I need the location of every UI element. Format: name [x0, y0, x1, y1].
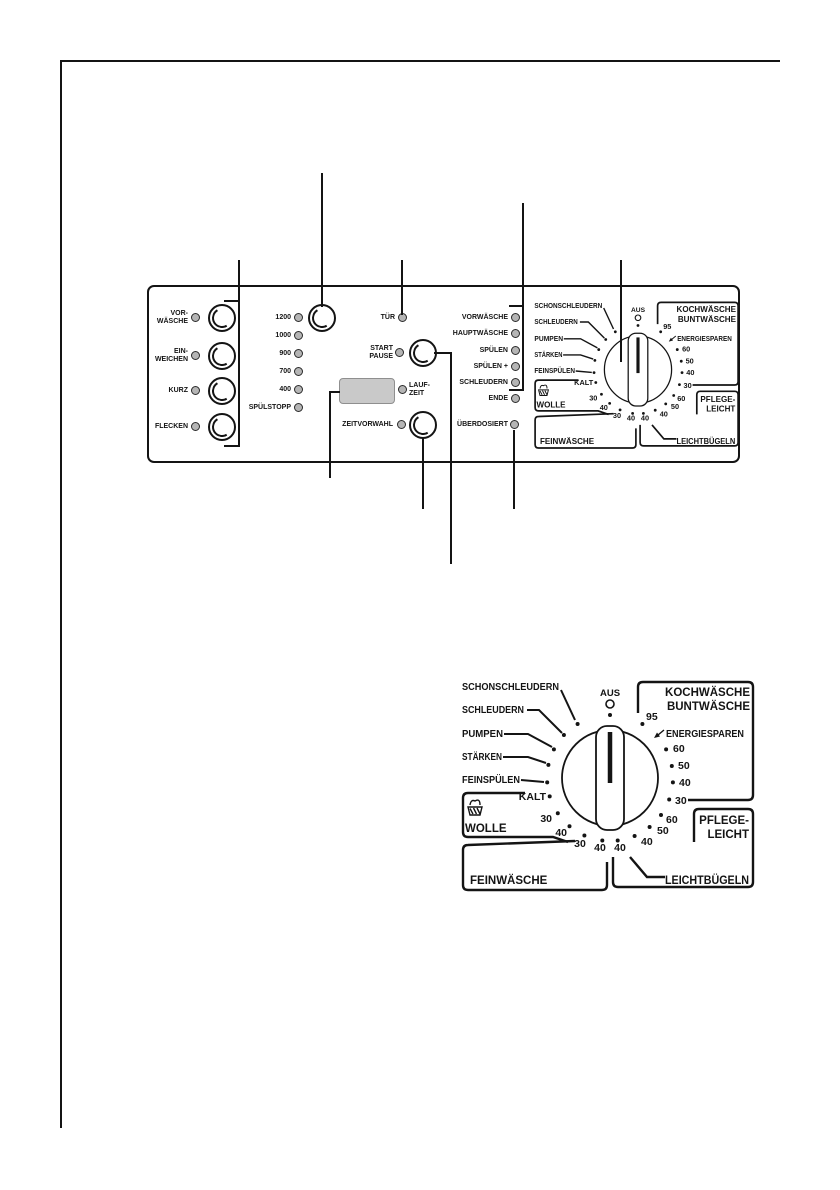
handwash-icon [468, 800, 482, 815]
leader-option-buttons [238, 260, 240, 286]
start-pause-button [409, 339, 437, 367]
spin-900-led [294, 349, 303, 358]
start-pause-label: START PAUSE [343, 345, 393, 361]
laufzeit-led [398, 385, 407, 394]
leader-program-dial [620, 260, 622, 362]
program-dial-diagram-large: AUS SCHONSCHLEUDERN SCHLEUDERN PUMPEN ST… [440, 660, 780, 910]
energiesparen-arrow [658, 730, 664, 735]
temp-50: 50 [678, 760, 690, 772]
leichtbuegeln-connector [630, 857, 665, 877]
program-pumpen: PUMPEN [462, 729, 503, 740]
spin-700-led [294, 367, 303, 376]
button-arc [310, 306, 334, 330]
spin-1200-label: 1200 [241, 314, 291, 322]
mark-40a: 40 [641, 836, 653, 848]
aus-marker [606, 700, 614, 708]
spin-700-label: 700 [241, 368, 291, 376]
page-frame-left [60, 60, 62, 1128]
flecken-button-label: FLECKEN [138, 423, 188, 431]
leader-tuer-led [401, 260, 403, 315]
ueberdosiert-led [510, 420, 519, 429]
phase-hauptwaesche-label: HAUPTWÄSCHE [436, 330, 508, 338]
aus-label: AUS [600, 688, 620, 699]
temp-60: 60 [673, 743, 685, 755]
spin-1000-label: 1000 [241, 332, 291, 340]
manual-page: VOR- WÄSCHE EIN- WEICHEN KURZ FLECKEN 12… [0, 0, 840, 1190]
region-buntwaesche-label: BUNTWÄSCHE [667, 700, 750, 713]
temp-30: 30 [675, 795, 687, 807]
phase-schleudern-label: SCHLEUDERN [436, 379, 508, 387]
leader-phase-leds [522, 203, 524, 391]
kurz-led [191, 386, 200, 395]
bracket-phase-leds-tick-bottom [509, 389, 524, 391]
page-frame-top [61, 60, 780, 62]
mark-30a: 30 [574, 838, 586, 850]
mark-30b: 30 [540, 813, 552, 825]
program-staerken: STÄRKEN [462, 750, 502, 763]
program-dial: AUS SCHONSCHLEUDERN SCHLEUDERN PUMPEN ST… [462, 682, 753, 890]
region-leicht-label: LEICHT [707, 829, 749, 841]
button-arc [411, 413, 435, 437]
region-wolle-label: WOLLE [465, 823, 507, 835]
leader-display-h [330, 391, 340, 393]
leader-display-v [329, 391, 331, 478]
bracket-option-buttons [238, 285, 240, 447]
spuelstopp-led [294, 403, 303, 412]
flecken-led [191, 422, 200, 431]
button-arc [210, 306, 234, 330]
program-dial-panel-instance [534, 302, 738, 448]
spin-900-label: 900 [241, 350, 291, 358]
kurz-button [208, 377, 236, 405]
einweichen-button [208, 342, 236, 370]
vorwaesche-led [191, 313, 200, 322]
phase-ende-label: ENDE [436, 395, 508, 403]
bracket-option-buttons-tick-top [224, 300, 240, 302]
ueberdosiert-label: ÜBERDOSIERT [436, 421, 508, 429]
energiesparen-label: ENERGIESPAREN [666, 729, 744, 740]
start-pause-led [395, 348, 404, 357]
zeitvorwahl-button [409, 411, 437, 439]
flecken-button [208, 413, 236, 441]
button-arc [210, 415, 234, 439]
button-arc [210, 344, 234, 368]
region-pflege-label: PFLEGE- [699, 815, 749, 827]
vorwaesche-button [208, 304, 236, 332]
program-schleudern: SCHLEUDERN [462, 705, 524, 716]
region-kochwaesche-label: KOCHWÄSCHE [665, 686, 750, 699]
temp-95: 95 [646, 711, 658, 723]
spin-400-label: 400 [241, 386, 291, 394]
leader-zeitvorwahl-button [422, 437, 424, 509]
program-schonschleudern: SCHONSCHLEUDERN [462, 682, 559, 693]
program-feinspuelen: FEINSPÜLEN [462, 773, 520, 786]
program-dial-diagram-panel [519, 287, 757, 462]
mark-50: 50 [657, 825, 669, 837]
tuer-label: TÜR [355, 314, 395, 322]
vorwaesche-button-label: VOR- WÄSCHE [138, 310, 188, 326]
zeitvorwahl-label: ZEITVORWAHL [333, 421, 393, 429]
spin-1200-led [294, 313, 303, 322]
time-display [339, 378, 395, 404]
phase-spuelen-plus-label: SPÜLEN + [436, 363, 508, 371]
button-arc [210, 379, 234, 403]
spin-select-button [308, 304, 336, 332]
spin-1000-led [294, 331, 303, 340]
zeitvorwahl-led [397, 420, 406, 429]
spin-400-led [294, 385, 303, 394]
bracket-phase-leds-tick-top [509, 305, 524, 307]
kurz-button-label: KURZ [138, 387, 188, 395]
mark-40c: 40 [594, 842, 606, 854]
bracket-option-buttons-tick-bottom [224, 445, 240, 447]
leader-start-button-v [450, 352, 452, 564]
button-arc [411, 341, 435, 365]
einweichen-led [191, 351, 200, 360]
region-leichtbuegeln-label: LEICHTBÜGELN [665, 874, 749, 887]
temp-40: 40 [679, 777, 691, 789]
spuelstopp-label: SPÜLSTOPP [241, 404, 291, 412]
leader-spin-button [321, 173, 323, 307]
region-feinwaesche-label: FEINWÄSCHE [470, 874, 548, 887]
einweichen-button-label: EIN- WEICHEN [138, 348, 188, 364]
mark-40b: 40 [614, 842, 626, 854]
leader-ueberdosiert-led [513, 430, 515, 509]
phase-vorwaesche-label: VORWÄSCHE [436, 314, 508, 322]
